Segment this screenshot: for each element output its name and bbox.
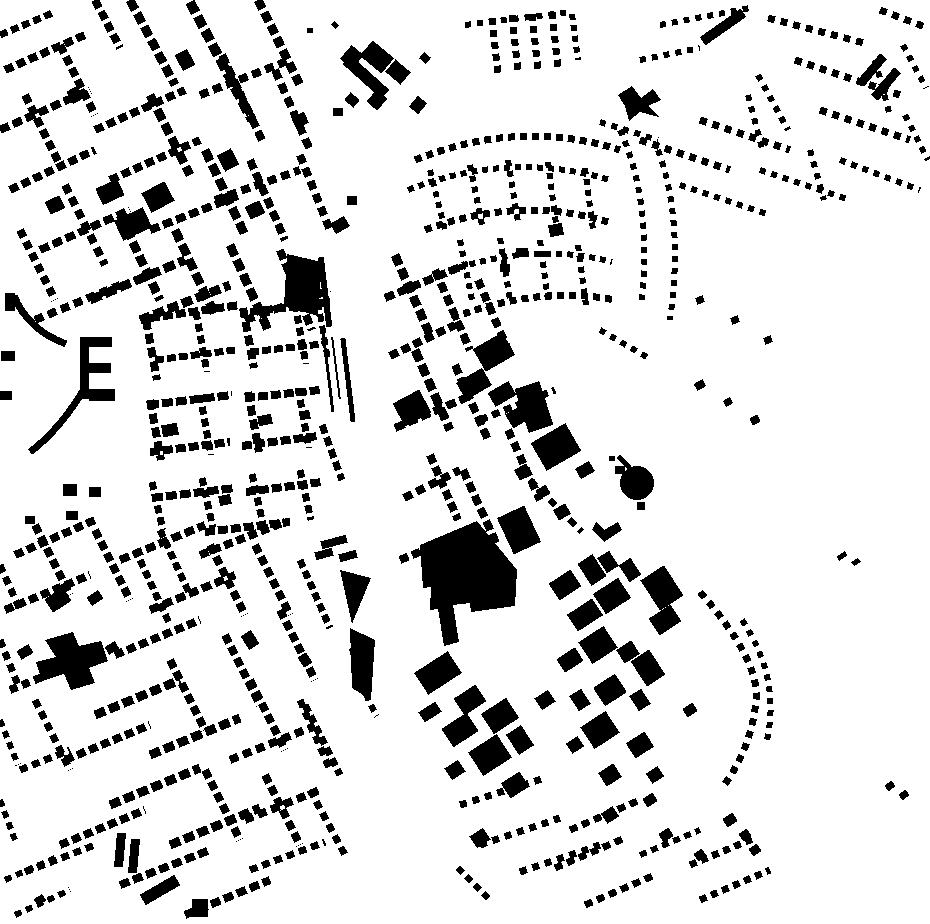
building-row <box>25 845 95 872</box>
building-block <box>141 181 174 213</box>
building-block <box>566 736 584 754</box>
building-row <box>840 160 920 190</box>
building-row <box>130 0 175 85</box>
building-block <box>217 148 240 171</box>
building-block <box>722 813 738 828</box>
buildings-layer <box>0 0 928 917</box>
building-row-curved <box>658 150 675 320</box>
building-block <box>333 108 343 116</box>
building-block <box>418 702 441 723</box>
building-row <box>903 45 926 88</box>
building-block <box>553 503 571 520</box>
building-footprint <box>340 570 371 624</box>
building-row <box>230 728 310 760</box>
building-block <box>444 760 465 780</box>
building-block <box>884 781 895 792</box>
building-block <box>175 49 196 71</box>
building-row <box>222 55 262 140</box>
building-row <box>585 875 655 905</box>
building-row <box>115 620 200 655</box>
building-block <box>567 598 603 631</box>
building-block <box>218 494 232 506</box>
building-row <box>390 325 455 356</box>
building-block <box>646 766 664 784</box>
building-footprint <box>592 522 622 542</box>
building-block <box>580 711 619 749</box>
building-row <box>265 775 300 845</box>
building-row <box>768 18 868 44</box>
building-row <box>95 90 185 130</box>
building-block <box>682 703 698 718</box>
building-block <box>497 506 541 555</box>
building-row <box>60 45 95 115</box>
building-block <box>257 414 273 426</box>
round-building <box>620 466 654 500</box>
building-block <box>748 844 761 857</box>
building-block <box>626 731 654 758</box>
building-footprint <box>420 521 517 646</box>
building-row <box>492 18 498 75</box>
building-row <box>700 870 770 900</box>
building-row <box>152 482 163 530</box>
building-row <box>600 330 652 360</box>
building-block <box>331 21 339 29</box>
crescent-terrace <box>30 386 86 452</box>
building-block <box>89 363 111 373</box>
building-block <box>534 690 555 710</box>
building-block <box>245 200 265 219</box>
building-block <box>481 698 519 734</box>
building-row <box>245 390 320 398</box>
building-block <box>340 338 355 422</box>
building-block <box>851 558 860 567</box>
building-row <box>300 560 330 628</box>
building-block <box>241 630 260 650</box>
building-row <box>255 545 290 615</box>
building-block <box>0 391 12 400</box>
building-row <box>280 610 315 680</box>
building-block <box>556 647 583 672</box>
building-row <box>880 10 928 28</box>
building-block <box>506 725 534 755</box>
building-block <box>500 264 510 272</box>
building-block <box>344 92 360 107</box>
building-block <box>16 644 33 660</box>
building-block <box>393 389 432 426</box>
building-row <box>275 70 310 150</box>
building-row <box>600 122 658 140</box>
building-row <box>758 75 788 130</box>
building-footprint <box>618 86 661 121</box>
building-row <box>820 110 910 140</box>
building-row <box>532 14 538 70</box>
building-row <box>300 155 330 230</box>
building-block <box>89 389 115 401</box>
building-row <box>202 478 213 528</box>
building-row <box>512 15 518 72</box>
building-row <box>460 778 545 805</box>
building-row <box>95 680 180 715</box>
building-block <box>414 651 462 695</box>
building-block <box>45 195 65 214</box>
building-row <box>0 800 15 840</box>
building-row <box>95 530 130 600</box>
building-row-curved <box>620 130 644 300</box>
building-block <box>730 315 740 324</box>
building-row <box>110 768 200 805</box>
building-row <box>322 425 342 480</box>
building-block <box>642 793 658 808</box>
building-row <box>480 818 560 845</box>
building-row <box>0 640 18 685</box>
building-row <box>40 210 130 250</box>
building-block <box>473 332 515 372</box>
building-block <box>128 839 140 874</box>
building-row <box>0 12 55 35</box>
building-block <box>598 763 622 786</box>
building-block <box>320 535 347 549</box>
building-row <box>140 560 170 625</box>
building-block <box>531 423 582 471</box>
building-row <box>300 470 311 520</box>
building-block <box>298 652 313 668</box>
building-row <box>252 474 263 524</box>
building-row <box>295 304 306 364</box>
building-row <box>680 185 770 215</box>
building-block <box>763 335 773 344</box>
building-block <box>549 570 582 601</box>
building-row <box>250 842 325 870</box>
building-block <box>299 410 310 421</box>
building-row <box>760 170 850 200</box>
building-block <box>1 351 15 361</box>
building-row <box>5 35 85 70</box>
building-row <box>640 140 730 170</box>
building-row <box>430 455 458 520</box>
building-block <box>89 487 101 497</box>
building-row <box>150 718 240 755</box>
building-row-curved <box>452 295 615 318</box>
building-block <box>347 196 357 205</box>
building-block <box>569 689 591 712</box>
building-block <box>330 216 350 234</box>
map-canvas <box>0 0 930 924</box>
building-row <box>250 160 285 240</box>
building-row <box>175 230 215 315</box>
building-block <box>658 828 674 843</box>
building-block <box>25 516 35 524</box>
building-row <box>155 350 235 360</box>
building-row <box>35 700 70 770</box>
building-row <box>540 240 548 300</box>
building-row <box>404 470 460 498</box>
building-block <box>501 771 529 798</box>
building-row <box>148 395 232 405</box>
building-block <box>548 223 564 237</box>
building-block <box>723 397 733 407</box>
building-block <box>640 565 683 610</box>
building-row <box>95 0 120 48</box>
building-block <box>34 894 47 906</box>
building-block <box>95 179 124 205</box>
building-row-curved <box>700 592 756 788</box>
building-block <box>140 875 181 905</box>
building-block <box>331 337 341 399</box>
building-block <box>609 456 615 461</box>
building-block <box>338 550 357 562</box>
building-block <box>836 551 847 561</box>
building-row <box>0 720 18 765</box>
building-block <box>114 833 126 868</box>
building-row-curved <box>415 136 620 160</box>
building-row <box>205 770 240 840</box>
building-row <box>640 48 700 60</box>
building-block <box>454 685 487 716</box>
building-row <box>250 344 322 352</box>
building-block <box>161 423 179 438</box>
building-row <box>196 312 207 372</box>
building-block <box>695 295 705 304</box>
building-block <box>593 674 627 707</box>
building-row <box>65 725 150 760</box>
building-block <box>488 381 517 407</box>
building-footprint <box>284 254 322 316</box>
building-row <box>460 240 472 300</box>
building-row <box>170 808 260 845</box>
building-block <box>314 548 333 560</box>
building-block <box>441 713 478 748</box>
building-block <box>575 461 595 479</box>
building-block <box>649 605 682 636</box>
building-block <box>88 337 112 347</box>
building-row <box>555 838 625 868</box>
building-row <box>146 320 157 380</box>
building-block <box>694 379 707 391</box>
building-row <box>5 858 55 880</box>
building-row <box>15 520 95 555</box>
city-figure-ground-map <box>0 0 930 924</box>
building-row <box>700 120 790 150</box>
building-block <box>307 28 313 33</box>
building-block <box>63 484 77 496</box>
building-block <box>514 463 532 480</box>
building-block <box>898 790 909 801</box>
building-block <box>619 558 642 582</box>
building-block <box>66 511 78 520</box>
building-block <box>601 806 619 824</box>
building-block <box>192 899 208 917</box>
building-block <box>419 52 431 64</box>
building-block <box>86 590 103 606</box>
building-row <box>458 868 492 902</box>
building-footprint <box>36 632 108 690</box>
building-block <box>409 96 427 114</box>
building-block <box>468 734 512 776</box>
building-block <box>578 626 617 664</box>
building-row <box>0 565 20 610</box>
building-block <box>629 689 651 712</box>
building-row <box>170 660 205 730</box>
building-row-curved <box>408 167 610 190</box>
building-row <box>572 14 578 60</box>
building-block <box>637 502 645 510</box>
building-block <box>749 414 761 425</box>
building-row <box>250 680 285 750</box>
building-row <box>552 12 558 68</box>
building-row <box>20 230 55 300</box>
